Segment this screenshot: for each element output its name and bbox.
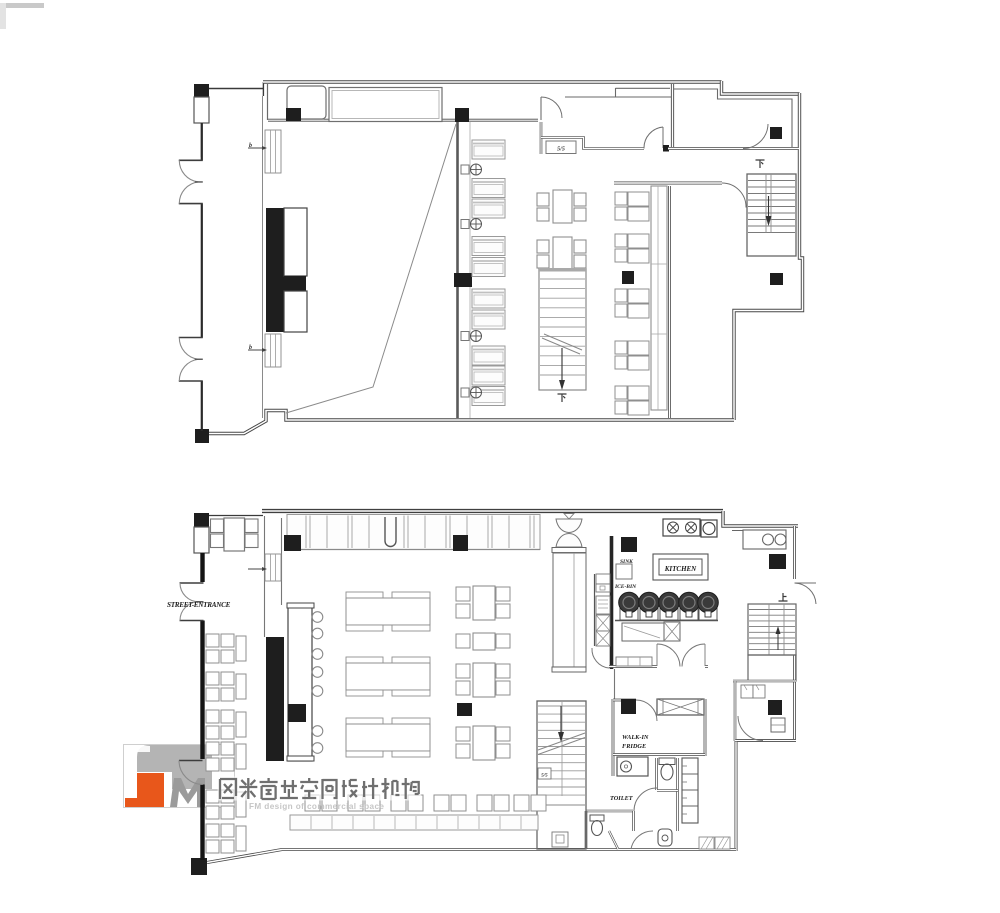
svg-text:b: b (249, 345, 252, 351)
svg-text:WALK-IN: WALK-IN (622, 734, 649, 741)
svg-text:STREET-ENTRANCE: STREET-ENTRANCE (167, 601, 231, 609)
svg-text:FRIDGE: FRIDGE (622, 743, 646, 750)
svg-text:KITCHEN: KITCHEN (664, 565, 697, 573)
svg-text:b: b (249, 143, 252, 149)
svg-text:TOILET: TOILET (610, 795, 634, 802)
svg-text:ICE-BIN: ICE-BIN (614, 584, 637, 590)
svg-text:FM design of commercial space: FM design of commercial space (249, 802, 384, 811)
svg-text:5/5: 5/5 (541, 774, 548, 779)
svg-text:5/5: 5/5 (557, 147, 565, 153)
